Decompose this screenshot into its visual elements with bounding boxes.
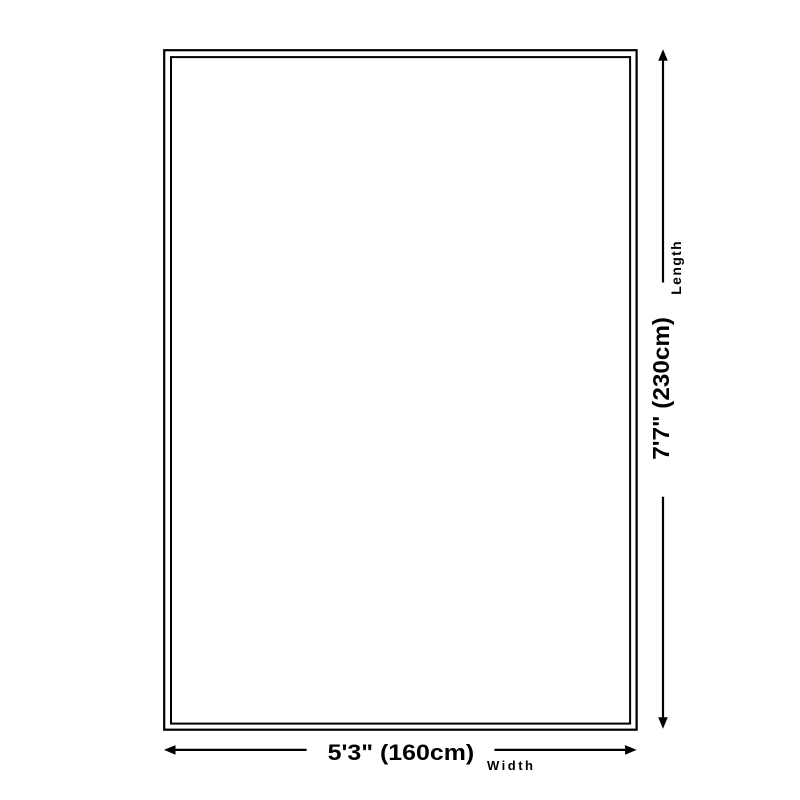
svg-text:7'7" (230cm): 7'7" (230cm) — [648, 317, 674, 460]
svg-text:5'3" (160cm): 5'3" (160cm) — [328, 740, 475, 765]
svg-text:Width: Width — [487, 758, 533, 773]
svg-text:Length: Length — [668, 241, 684, 295]
